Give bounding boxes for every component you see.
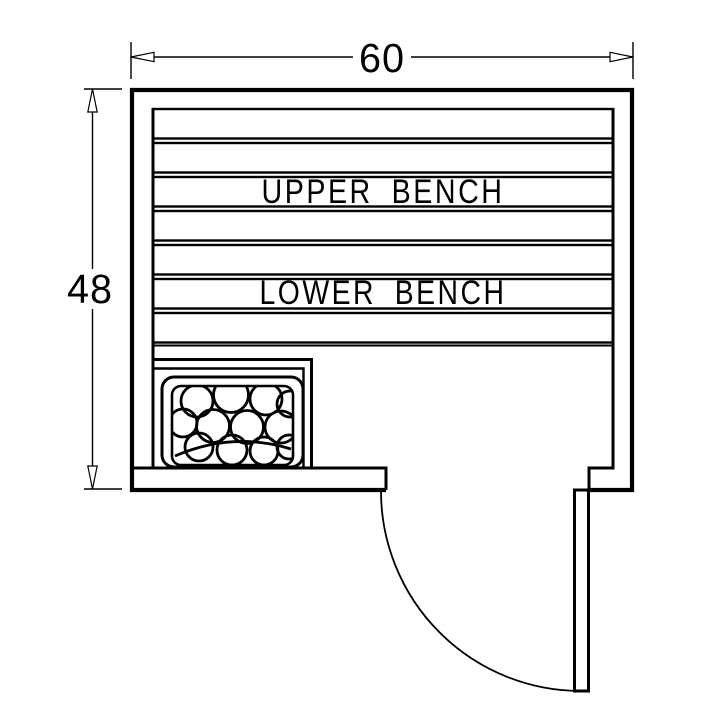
- floor-plan-drawing: 60 48: [0, 0, 725, 725]
- bench-plank: [153, 245, 613, 275]
- heater-rim-arc: [175, 441, 291, 456]
- heater-body-inner: [172, 386, 293, 465]
- rock-icon: [214, 378, 249, 413]
- heater-rocks: [169, 378, 303, 466]
- door: [381, 490, 589, 691]
- lower-bench-label: LOWER BENCH: [260, 274, 507, 312]
- door-swing-arc: [381, 491, 581, 691]
- door-leaf: [575, 490, 589, 691]
- height-dimension-label: 48: [67, 266, 113, 312]
- arrowhead-down-icon: [88, 466, 97, 489]
- bench-plank: [153, 109, 613, 139]
- bench-plank: [153, 211, 613, 241]
- heater: [162, 377, 303, 467]
- inner-wall-bottom-left: [132, 468, 386, 490]
- arrowhead-left-icon: [131, 52, 154, 61]
- rock-icon: [217, 435, 247, 465]
- rock-icon: [181, 385, 213, 417]
- bench-plank: [153, 143, 613, 173]
- upper-bench-label: UPPER BENCH: [262, 173, 505, 211]
- width-dimension-label: 60: [359, 35, 405, 81]
- arrowhead-right-icon: [610, 52, 633, 61]
- floor-plan-svg: 60 48: [0, 0, 725, 725]
- bench-plank: [153, 313, 613, 343]
- inner-wall-right: [589, 108, 613, 490]
- arrowhead-up-icon: [88, 89, 97, 112]
